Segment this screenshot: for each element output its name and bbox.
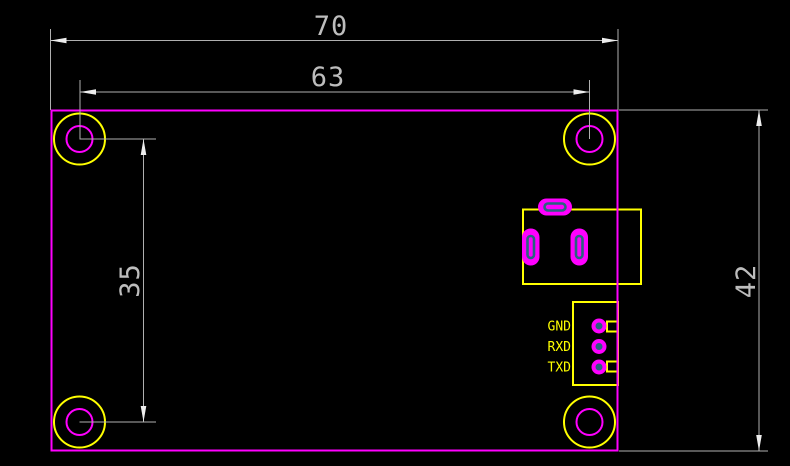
dc-jack-pad-left [522, 229, 540, 266]
dim-value-42: 42 [731, 264, 762, 299]
dc-jack-pad-top [538, 199, 572, 216]
dim-value-63: 63 [311, 62, 346, 93]
serial-pad-gnd-drill [596, 323, 603, 330]
cad-drawing-canvas: GND RXD TXD 70 63 [0, 0, 790, 466]
pin-label-rxd: RXD [548, 340, 572, 355]
dc-jack-pad-right [571, 229, 589, 266]
dim-value-35: 35 [115, 263, 146, 298]
pin-label-txd: TXD [548, 361, 572, 376]
drawing-background [0, 0, 790, 466]
serial-pad-txd-drill [596, 364, 603, 371]
dim-value-70: 70 [314, 11, 349, 42]
pin-label-gnd: GND [548, 320, 572, 335]
serial-pad-rxd-drill [596, 343, 603, 350]
